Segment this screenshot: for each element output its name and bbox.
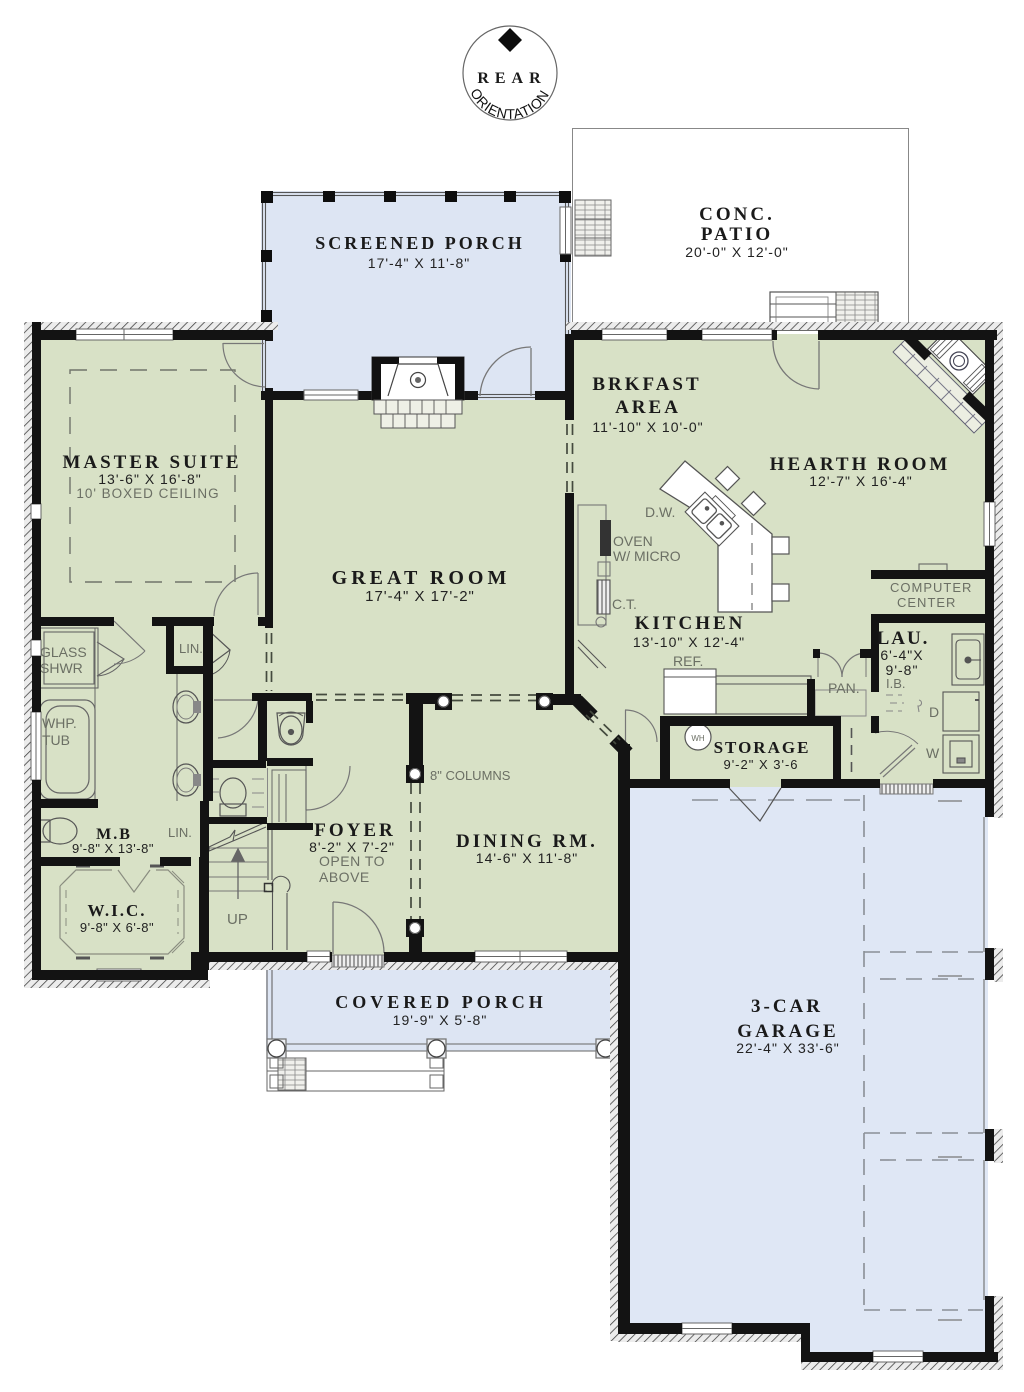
svg-text:PATIO: PATIO xyxy=(701,224,773,245)
svg-text:REAR: REAR xyxy=(477,70,546,87)
svg-text:ABOVE: ABOVE xyxy=(319,869,370,885)
svg-text:LIN.: LIN. xyxy=(168,825,192,840)
svg-text:PAN.: PAN. xyxy=(828,680,860,696)
svg-text:WHP.: WHP. xyxy=(42,715,77,731)
svg-text:OVEN: OVEN xyxy=(613,533,653,549)
svg-text:HEARTH ROOM: HEARTH ROOM xyxy=(770,454,951,475)
svg-text:AREA: AREA xyxy=(615,397,681,418)
svg-text:13'-10" X 12'-4": 13'-10" X 12'-4" xyxy=(633,634,745,650)
svg-text:D.W.: D.W. xyxy=(645,504,675,520)
svg-text:9'-8" X 6'-8": 9'-8" X 6'-8" xyxy=(80,920,154,935)
svg-text:TUB: TUB xyxy=(42,732,70,748)
svg-text:LIN.: LIN. xyxy=(179,641,203,656)
svg-text:13'-6" X 16'-8": 13'-6" X 16'-8" xyxy=(98,471,201,487)
svg-text:11'-10" X 10'-0": 11'-10" X 10'-0" xyxy=(592,419,703,435)
svg-text:CENTER: CENTER xyxy=(897,595,956,610)
svg-text:REF.: REF. xyxy=(673,653,703,669)
svg-text:GLASS: GLASS xyxy=(40,644,87,660)
svg-text:KITCHEN: KITCHEN xyxy=(635,613,746,634)
svg-text:6'-4"X: 6'-4"X xyxy=(880,647,923,663)
svg-text:9'-2" X 3'-6: 9'-2" X 3'-6 xyxy=(723,757,798,772)
svg-text:CONC.: CONC. xyxy=(699,204,775,225)
svg-text:20'-0" X 12'-0": 20'-0" X 12'-0" xyxy=(685,244,788,260)
svg-text:17'-4" X 17'-2": 17'-4" X 17'-2" xyxy=(365,588,475,605)
svg-text:17'-4" X 11'-8": 17'-4" X 11'-8" xyxy=(368,255,470,271)
svg-text:14'-6" X 11'-8": 14'-6" X 11'-8" xyxy=(476,850,578,866)
svg-text:COVERED PORCH: COVERED PORCH xyxy=(335,992,547,1012)
svg-text:12'-7" X 16'-4": 12'-7" X 16'-4" xyxy=(809,473,912,489)
svg-text:I.B.: I.B. xyxy=(886,676,906,691)
svg-text:W/ MICRO: W/ MICRO xyxy=(613,548,681,564)
svg-text:SCREENED PORCH: SCREENED PORCH xyxy=(315,233,525,253)
svg-text:3-CAR: 3-CAR xyxy=(751,996,823,1017)
svg-text:COMPUTER: COMPUTER xyxy=(890,580,972,595)
svg-text:BRKFAST: BRKFAST xyxy=(592,374,701,395)
svg-text:DINING RM.: DINING RM. xyxy=(456,831,598,852)
svg-text:9'-8" X 13'-8": 9'-8" X 13'-8" xyxy=(72,841,154,856)
svg-text:LAU.: LAU. xyxy=(877,628,930,649)
svg-text:SHWR: SHWR xyxy=(40,660,83,676)
svg-text:STORAGE: STORAGE xyxy=(714,738,811,757)
svg-text:C.T.: C.T. xyxy=(612,596,637,612)
svg-text:19'-9" X 5'-8": 19'-9" X 5'-8" xyxy=(393,1012,488,1028)
svg-text:MASTER SUITE: MASTER SUITE xyxy=(62,452,241,473)
svg-text:GARAGE: GARAGE xyxy=(737,1021,838,1042)
svg-text:W: W xyxy=(926,745,940,761)
svg-text:FOYER: FOYER xyxy=(314,820,396,841)
svg-text:W.I.C.: W.I.C. xyxy=(87,901,146,920)
svg-text:OPEN TO: OPEN TO xyxy=(319,853,385,869)
svg-text:WH: WH xyxy=(691,734,705,743)
svg-text:8" COLUMNS: 8" COLUMNS xyxy=(430,768,511,783)
svg-text:22'-4" X 33'-6": 22'-4" X 33'-6" xyxy=(736,1040,839,1056)
svg-text:UP: UP xyxy=(227,911,248,928)
svg-text:10' BOXED CEILING: 10' BOXED CEILING xyxy=(76,486,219,501)
svg-text:GREAT ROOM: GREAT ROOM xyxy=(332,567,511,589)
svg-text:D: D xyxy=(929,704,939,720)
